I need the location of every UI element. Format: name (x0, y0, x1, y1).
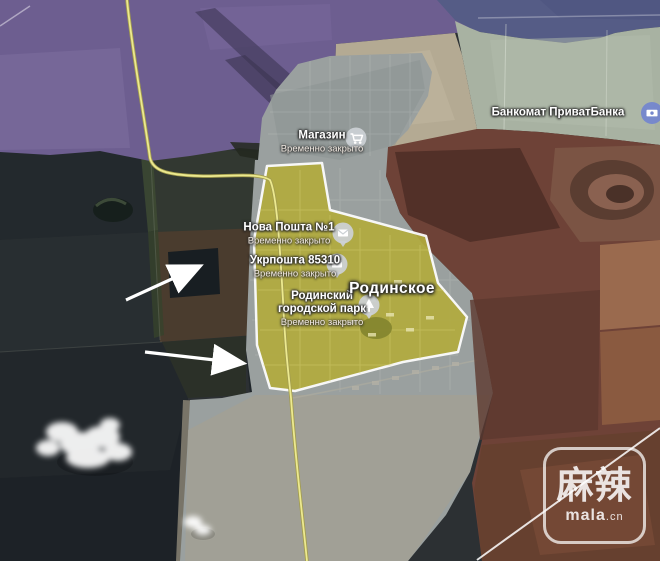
watermark-latin: mala (565, 507, 605, 524)
watermark-cjk-text: 麻辣 (557, 467, 633, 504)
poi-label-atm[interactable]: Банкомат ПриватБанка (492, 106, 625, 119)
banknote-icon (647, 110, 658, 117)
map-viewport[interactable]: Магазин Временно закрыто Нова Пошта №1 В… (0, 0, 660, 561)
poi-status: Временно закрыто (268, 317, 376, 328)
poi-label-ukrposhta[interactable]: Укрпошта 85310 Временно закрыто (250, 254, 340, 279)
envelope-icon (338, 230, 348, 237)
town-name: Родинское (349, 280, 435, 298)
town-label-rodynske[interactable]: Родинское (349, 280, 435, 298)
poi-label-nova-poshta[interactable]: Нова Пошта №1 Временно закрыто (243, 221, 334, 246)
poi-label-shop[interactable]: Магазин Временно закрыто (281, 129, 364, 154)
poi-name: Нова Пошта №1 (243, 221, 334, 234)
poi-name: Магазин (281, 129, 364, 142)
watermark-tld: .cn (606, 511, 624, 523)
poi-status: Временно закрыто (250, 269, 340, 280)
poi-status: Временно закрыто (243, 236, 334, 247)
poi-status: Временно закрыто (281, 144, 364, 155)
poi-name: Банкомат ПриватБанка (492, 106, 625, 119)
watermark: 麻辣 mala.cn (543, 447, 646, 544)
watermark-site-text: mala.cn (565, 507, 623, 525)
poi-name: Укрпошта 85310 (250, 254, 340, 267)
